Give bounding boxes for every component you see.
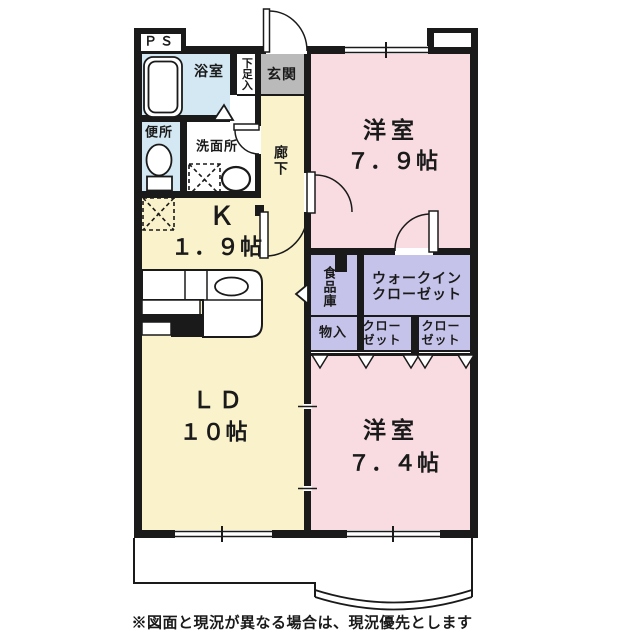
- label-closet2: クロー ゼット: [421, 320, 460, 348]
- label-wic-line2: クローゼット: [372, 286, 462, 302]
- label-closet2-line2: ゼット: [421, 334, 460, 348]
- floorplan: ＰＳ 浴室 下足入 玄関 廊下 便所 洗面所 洋室 ７．９帖 Ｋ １．９帖 食品…: [0, 0, 640, 640]
- entrance-door-swing: [264, 9, 308, 52]
- toilet-bowl: [147, 145, 173, 191]
- western1-door-swing: [307, 172, 352, 213]
- label-toilet: 便所: [145, 126, 173, 141]
- label-entrance: 玄関: [267, 66, 297, 82]
- label-shoe-box: 下足入: [240, 58, 253, 91]
- label-washroom: 洗面所: [196, 140, 238, 155]
- label-closet2-line1: クロー: [421, 320, 460, 334]
- bathtub: [144, 57, 182, 117]
- bathroom-folding-door: [214, 105, 233, 120]
- wic-door-swing: [395, 211, 438, 252]
- refrigerator-space: [143, 198, 174, 230]
- label-ld-size: １０帖: [179, 419, 248, 444]
- label-western1-size: ７．９帖: [347, 148, 439, 173]
- label-closet1-line1: クロー: [362, 320, 401, 334]
- balcony-outline: [134, 538, 472, 610]
- label-wic: ウォークイン クローゼット: [372, 270, 462, 302]
- label-wic-line1: ウォークイン: [372, 270, 462, 286]
- kitchen-sink: [215, 278, 248, 296]
- wall-joint-ticks: [298, 407, 317, 489]
- washbasin: [222, 167, 250, 191]
- label-western2-name: 洋室: [363, 417, 419, 443]
- pantry-door-arrow: [296, 284, 308, 304]
- label-closet1: クロー ゼット: [362, 320, 401, 348]
- top-window-glass: [345, 42, 428, 58]
- label-western1-name: 洋室: [363, 117, 419, 143]
- label-kitchen-size: １．９帖: [171, 234, 263, 259]
- label-pipe-space: ＰＳ: [144, 35, 176, 50]
- label-storage: 物入: [319, 326, 347, 341]
- label-bathroom: 浴室: [194, 63, 224, 79]
- ld-window-glass: [175, 526, 272, 542]
- label-closet1-line2: ゼット: [362, 334, 401, 348]
- fixtures-layer: [0, 0, 640, 640]
- label-ld-name: ＬＤ: [192, 387, 246, 413]
- label-hallway: 廊下: [273, 145, 289, 177]
- ld-door-swing: [260, 212, 307, 258]
- label-kitchen-name: Ｋ: [209, 203, 235, 232]
- label-pantry: 食品庫: [321, 266, 336, 308]
- disclaimer-note: ※図面と現況が異なる場合は、現況優先とします: [131, 614, 472, 631]
- western2-window-glass: [347, 526, 440, 542]
- closet-door-marks: [312, 355, 474, 368]
- washing-machine-pan: [189, 164, 220, 195]
- kitchen-counter: [142, 270, 262, 337]
- label-western2-size: ７．４帖: [348, 450, 440, 475]
